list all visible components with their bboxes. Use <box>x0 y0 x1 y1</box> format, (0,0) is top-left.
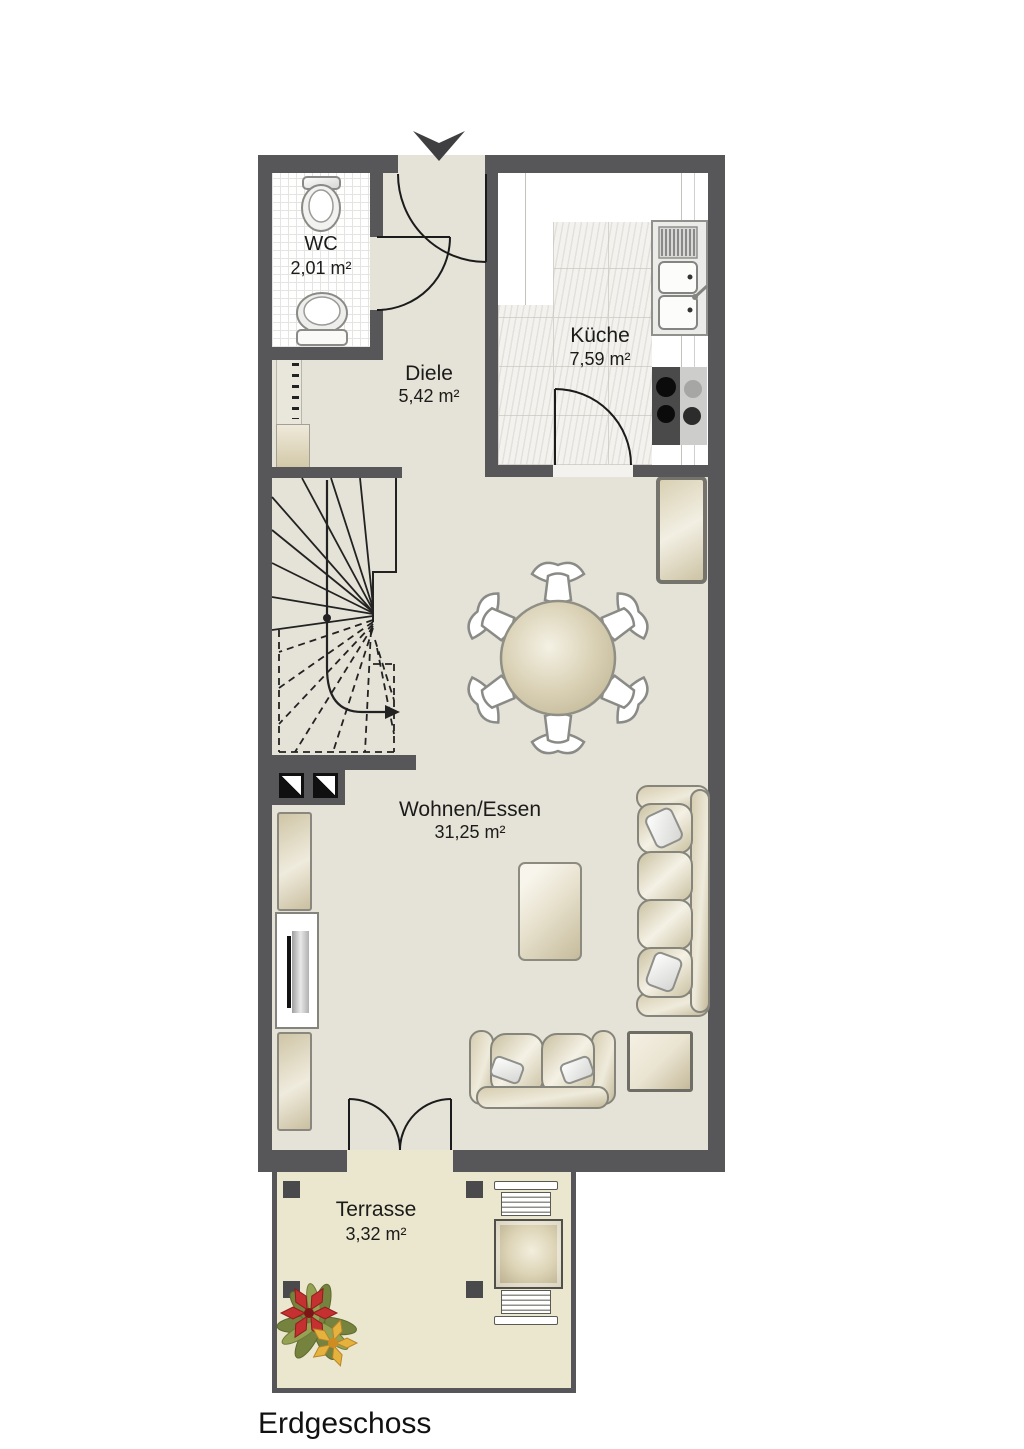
winder-stairs-icon <box>272 478 400 752</box>
entrance-door <box>398 174 486 262</box>
loveseat-icon <box>470 1031 615 1108</box>
room-label-kueche: Küche <box>570 324 630 348</box>
terrace-double-door <box>349 1099 451 1150</box>
room-area-wc: 2,01 m² <box>290 258 351 279</box>
plant-icon <box>276 1282 357 1367</box>
plan-vector-layer <box>0 0 1024 1449</box>
washbasin-icon <box>297 293 347 345</box>
dining-table-icon <box>501 601 615 715</box>
kitchen-door <box>555 389 631 465</box>
room-area-wohnen-essen: 31,25 m² <box>434 822 505 843</box>
room-label-wc: WC <box>304 233 337 256</box>
duct-shaft-icon <box>313 773 338 798</box>
toilet-icon <box>302 177 340 231</box>
floor-plan: WC 2,01 m² Diele 5,42 m² Küche 7,59 m² W… <box>0 0 1024 1449</box>
room-area-terrasse: 3,32 m² <box>345 1224 406 1245</box>
room-label-diele: Diele <box>405 362 453 386</box>
room-area-kueche: 7,59 m² <box>569 349 630 370</box>
duct-shaft-icon <box>279 773 304 798</box>
cooktop-icon <box>652 367 707 445</box>
sofa-icon <box>637 786 709 1016</box>
floor-title: Erdgeschoss <box>258 1407 431 1441</box>
dining-set <box>463 563 654 753</box>
room-area-diele: 5,42 m² <box>398 386 459 407</box>
kitchen-sink-icon <box>652 221 707 335</box>
room-label-terrasse: Terrasse <box>336 1198 417 1222</box>
room-label-wohnen-essen: Wohnen/Essen <box>399 798 541 822</box>
entrance-arrow-icon <box>413 131 465 161</box>
